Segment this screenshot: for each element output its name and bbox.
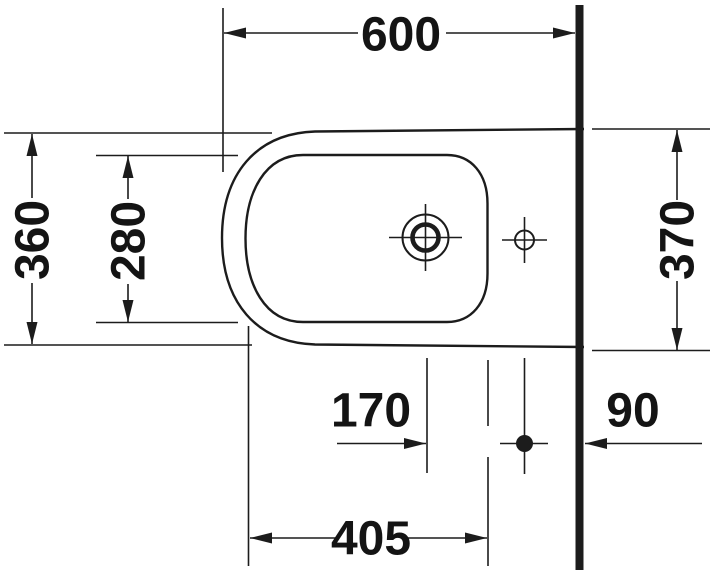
drawing-page: 600 360 280 370 170 [0, 0, 713, 576]
dim-405-label: 405 [331, 512, 411, 565]
dim-370-label: 370 [651, 200, 704, 280]
dimension-basin-width: 280 [96, 156, 238, 323]
dimension-basin-length: 405 [249, 326, 489, 566]
arrowhead-right [404, 438, 426, 449]
arrowhead-down [123, 300, 134, 322]
arrowhead-up [27, 134, 38, 156]
dim-280-label: 280 [102, 201, 155, 281]
arrowhead-left [250, 533, 272, 544]
fixing-point-dot [516, 435, 533, 452]
tap-hole-icon [502, 217, 547, 263]
dimension-wall-width: 370 [592, 129, 710, 351]
arrowhead-left [585, 438, 607, 449]
dim-360-label: 360 [6, 200, 59, 280]
dimension-drain-to-hole: 170 [331, 358, 427, 473]
bidet-basin-outline [246, 155, 488, 322]
wall-line [576, 5, 584, 570]
technical-drawing-canvas: 600 360 280 370 170 [0, 0, 713, 576]
arrowhead-right [465, 533, 487, 544]
fixing-point-icon [500, 358, 548, 474]
dimension-overall-length: 600 [223, 8, 575, 172]
dimension-hole-to-wall: 90 [585, 384, 702, 449]
arrowhead-down [672, 328, 683, 350]
arrowhead-up [123, 156, 134, 178]
arrowhead-up [672, 130, 683, 152]
dim-600-label: 600 [361, 8, 441, 61]
arrowhead-down [27, 322, 38, 344]
arrowhead-left [224, 28, 246, 39]
dim-170-label: 170 [331, 384, 411, 437]
drain-icon [389, 204, 462, 271]
arrowhead-right [553, 28, 575, 39]
dim-90-label: 90 [606, 384, 659, 437]
